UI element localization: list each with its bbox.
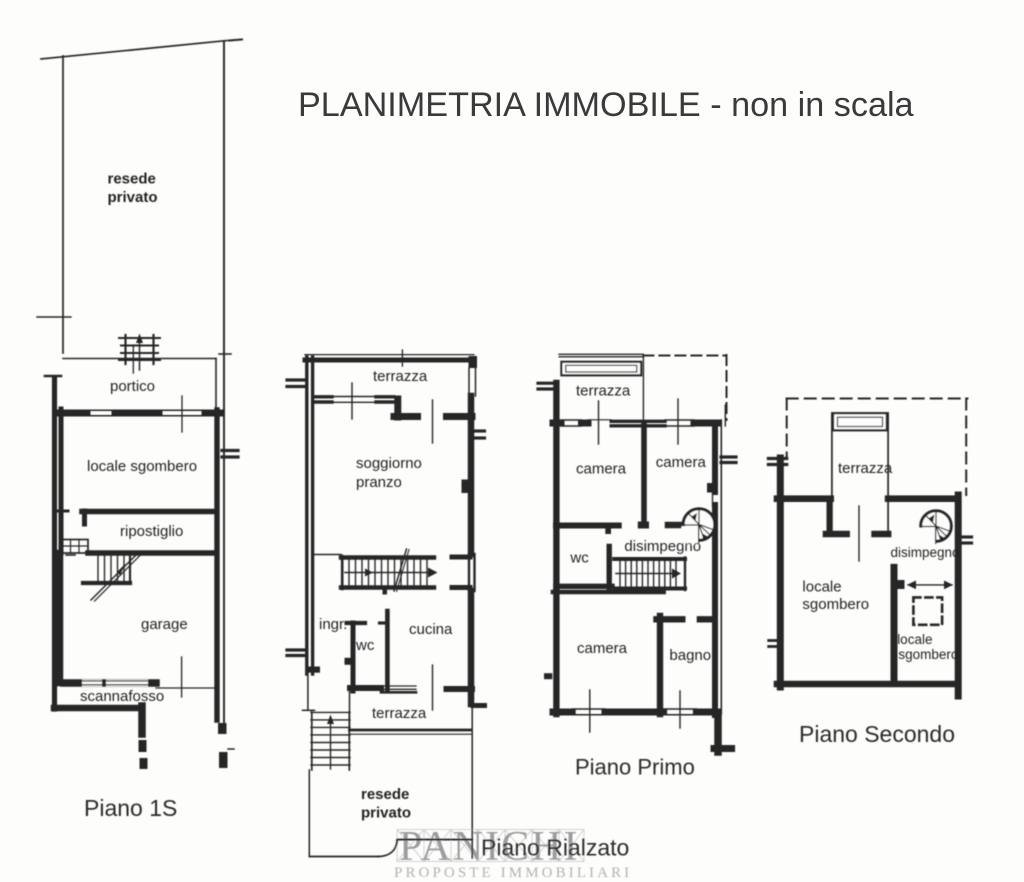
svg-text:locale: locale: [897, 632, 932, 647]
svg-text:disimpegno: disimpegno: [624, 538, 701, 555]
svg-text:Piano Rialzato: Piano Rialzato: [481, 835, 629, 861]
svg-text:PLANIMETRIA IMMOBILE - non in: PLANIMETRIA IMMOBILE - non in scala: [298, 86, 915, 124]
svg-text:resede: resede: [108, 171, 156, 188]
svg-text:ripostiglio: ripostiglio: [120, 523, 183, 540]
svg-text:camera: camera: [656, 454, 707, 471]
svg-text:Piano 1S: Piano 1S: [84, 795, 177, 821]
svg-text:portico: portico: [110, 378, 155, 395]
svg-text:privato: privato: [361, 805, 411, 822]
svg-text:terrazza: terrazza: [576, 383, 631, 400]
svg-text:bagno: bagno: [669, 647, 711, 664]
svg-text:cucina: cucina: [409, 621, 453, 638]
svg-text:wc: wc: [355, 637, 375, 654]
svg-text:locale sgombero: locale sgombero: [87, 458, 197, 475]
svg-text:privato: privato: [108, 189, 158, 206]
svg-text:locale: locale: [802, 579, 841, 596]
svg-text:Piano Secondo: Piano Secondo: [799, 721, 955, 747]
svg-text:sgombero: sgombero: [802, 596, 869, 613]
svg-text:sgombero: sgombero: [898, 647, 958, 662]
svg-text:camera: camera: [576, 461, 627, 478]
svg-text:resede: resede: [361, 786, 409, 803]
svg-text:disimpegno: disimpegno: [891, 545, 960, 560]
svg-text:garage: garage: [141, 616, 188, 633]
svg-text:camera: camera: [577, 640, 628, 657]
svg-text:scannafosso: scannafosso: [80, 688, 164, 705]
svg-text:Piano Primo: Piano Primo: [575, 755, 695, 780]
svg-text:terrazza: terrazza: [372, 705, 427, 722]
svg-text:terrazza: terrazza: [373, 368, 428, 385]
svg-text:PROPOSTE IMMOBILIARI: PROPOSTE IMMOBILIARI: [394, 865, 632, 881]
svg-text:ingr.: ingr.: [319, 616, 347, 633]
svg-text:pranzo: pranzo: [356, 474, 402, 491]
svg-text:soggiorno: soggiorno: [356, 455, 422, 472]
svg-text:terrazza: terrazza: [838, 460, 893, 477]
svg-text:wc: wc: [569, 550, 589, 567]
